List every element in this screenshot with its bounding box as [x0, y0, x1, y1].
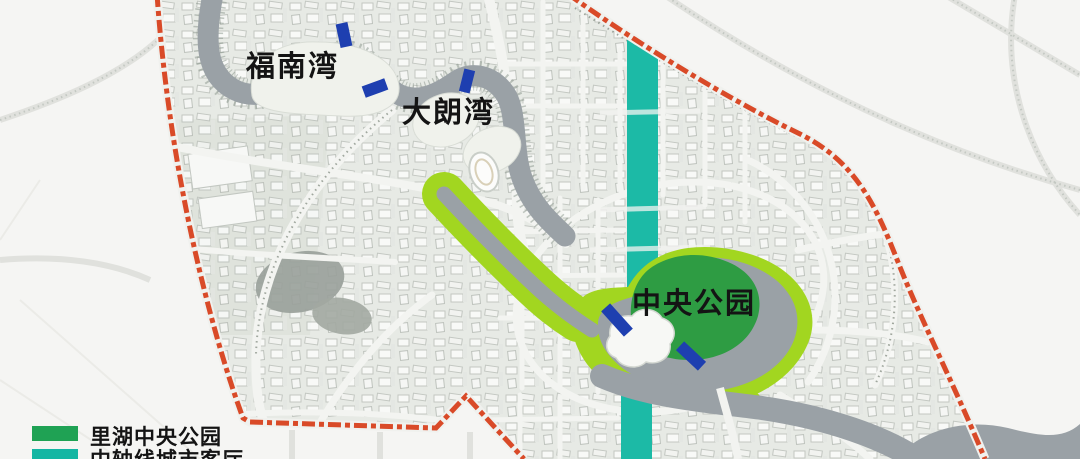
legend-swatch-park	[32, 426, 78, 441]
map-label-central-park: 中央公园	[632, 286, 756, 320]
map-label-funan-bay: 福南湾	[245, 49, 339, 83]
map-label-dalang-bay: 大朗湾	[402, 95, 495, 129]
legend-swatch-axis	[32, 449, 78, 459]
legend-label-axis: 中轴线城市客厅	[90, 448, 244, 459]
master-plan-map: 福南湾 大朗湾 中央公园 里湖中央公园 中轴线城市客厅	[0, 0, 1080, 459]
legend-label-park: 里湖中央公园	[90, 425, 222, 449]
planning-map-screenshot: 福南湾 大朗湾 中央公园 里湖中央公园 中轴线城市客厅	[0, 0, 1080, 459]
